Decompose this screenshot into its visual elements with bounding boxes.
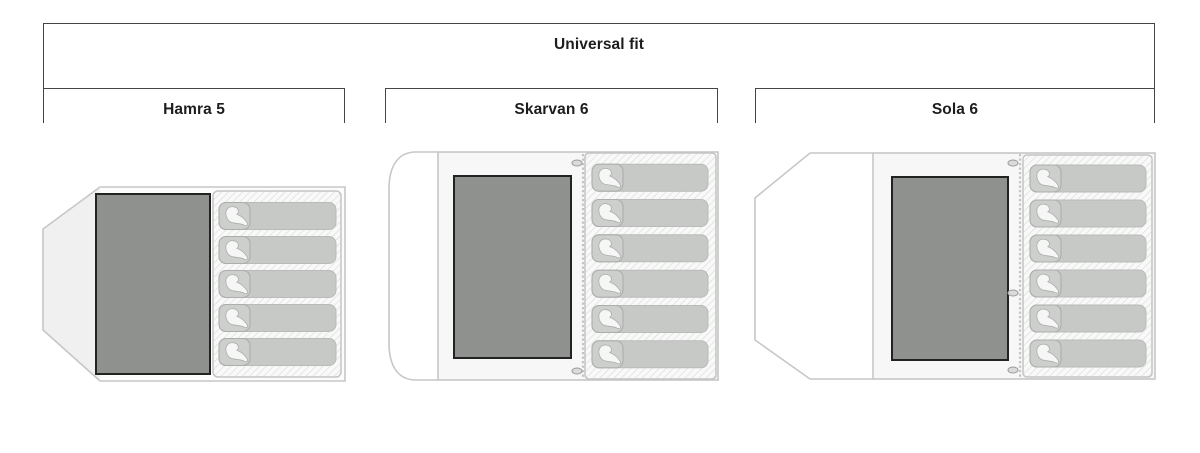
universal-fit-label: Universal fit: [44, 24, 1154, 54]
sleeping-bag: [219, 237, 336, 264]
hamra-floorplan: [35, 180, 355, 392]
sleeping-bag: [592, 270, 708, 297]
sleeping-bag: [592, 164, 708, 191]
hamra-sleeping-bags: [219, 203, 336, 366]
zipper-pull-icon: [572, 160, 582, 166]
sleeping-bag: [219, 305, 336, 332]
sola-inner-tent: [892, 177, 1008, 360]
hamra-bracket: Hamra 5: [43, 88, 345, 123]
sleeping-bag: [1030, 200, 1146, 227]
sleeping-bag: [592, 341, 708, 368]
zipper-pull-icon: [1008, 160, 1018, 166]
tent-compatibility-diagram: Universal fit Hamra 5 Skarvan 6 Sola 6: [0, 0, 1200, 453]
sola-label: Sola 6: [756, 89, 1154, 119]
skarvan-bracket: Skarvan 6: [385, 88, 718, 123]
skarvan-inner-tent: [454, 176, 571, 358]
sleeping-bag: [1030, 270, 1146, 297]
hamra-inner-tent: [96, 194, 210, 374]
hamra-vestibule: [43, 187, 100, 381]
sleeping-bag: [219, 203, 336, 230]
sleeping-bag: [1030, 235, 1146, 262]
sleeping-bag: [1030, 305, 1146, 332]
sola-vestibule: [755, 153, 873, 379]
sleeping-bag: [592, 235, 708, 262]
sleeping-bag: [219, 271, 336, 298]
sleeping-bag: [219, 339, 336, 366]
skarvan-floorplan: [380, 145, 725, 390]
skarvan-vestibule: [389, 152, 438, 380]
sola-bracket: Sola 6: [755, 88, 1155, 123]
zipper-pull-icon: [572, 368, 582, 374]
skarvan-label: Skarvan 6: [386, 89, 717, 119]
zipper-pull-icon: [1008, 290, 1018, 296]
sleeping-bag: [592, 306, 708, 333]
sola-floorplan: [750, 145, 1160, 390]
hamra-label: Hamra 5: [44, 89, 344, 119]
sleeping-bag: [592, 200, 708, 227]
sleeping-bag: [1030, 165, 1146, 192]
zipper-pull-icon: [1008, 367, 1018, 373]
sleeping-bag: [1030, 340, 1146, 367]
